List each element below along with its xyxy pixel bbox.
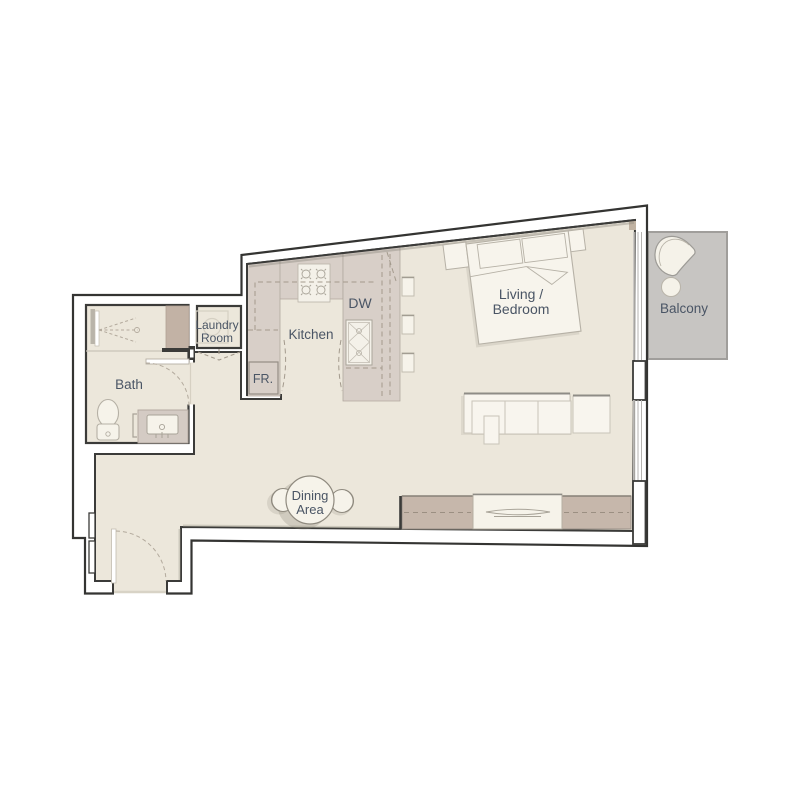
- svg-text:Bath: Bath: [115, 377, 143, 392]
- svg-text:Dining: Dining: [292, 488, 329, 503]
- svg-text:FR.: FR.: [253, 372, 273, 386]
- svg-text:Room: Room: [201, 331, 233, 345]
- svg-text:Balcony: Balcony: [660, 301, 708, 316]
- svg-text:DW: DW: [348, 295, 372, 311]
- svg-text:Bedroom: Bedroom: [493, 301, 550, 317]
- svg-text:Laundry: Laundry: [195, 318, 238, 332]
- svg-text:Living /: Living /: [499, 286, 543, 302]
- svg-text:Kitchen: Kitchen: [288, 327, 333, 342]
- svg-text:Area: Area: [296, 502, 324, 517]
